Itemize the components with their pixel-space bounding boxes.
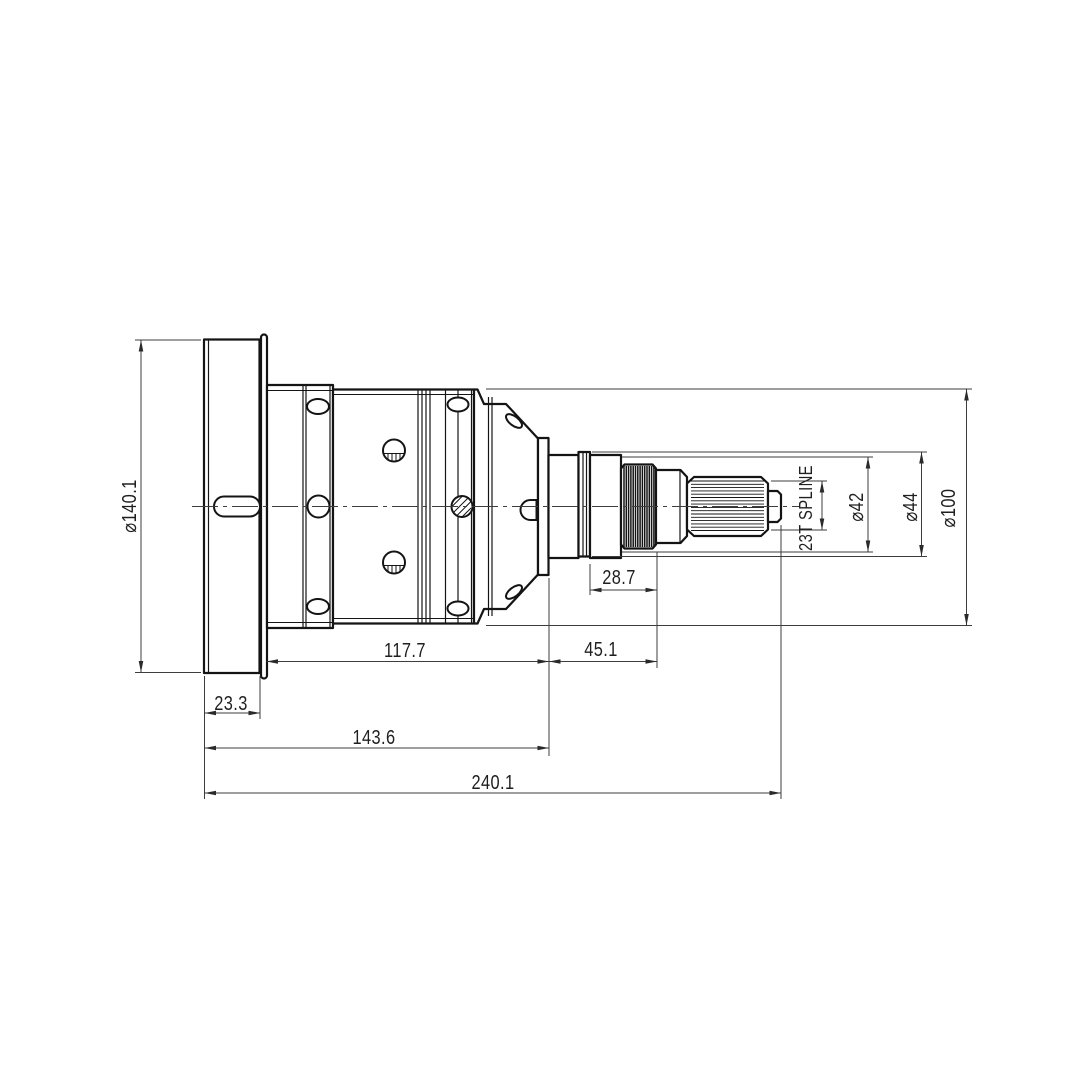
housing-slot [448, 602, 469, 616]
label-overall-length: 240.1 [471, 773, 514, 793]
label-thread-length: 28.7 [602, 568, 636, 588]
housing-slot [448, 398, 469, 412]
face-notch [521, 500, 537, 520]
label-shaft-length: 45.1 [584, 640, 618, 660]
housing-slot [307, 399, 329, 414]
label-spline-callout: 23T SPLINE [797, 465, 815, 551]
axle-shaft-drawing [0, 0, 1080, 1080]
technical-drawing-canvas: ⌀140.1 117.7 45.1 28.7 23.3 143.6 240.1 … [0, 0, 1080, 1080]
housing-slot [307, 599, 329, 614]
bolt-hole-top [383, 440, 405, 462]
label-flange-diameter: ⌀140.1 [120, 479, 140, 532]
dim-flange-diameter [135, 340, 201, 673]
label-housing-length: 117.7 [384, 641, 426, 661]
bolt-hole-bottom [383, 552, 405, 574]
label-spline-diameter: ⌀42 [847, 492, 867, 521]
label-flange-thickness: 23.3 [214, 694, 248, 714]
label-collar-diameter: ⌀44 [901, 492, 921, 521]
label-flange-to-housing-face: 143.6 [352, 728, 395, 748]
label-housing-diameter: ⌀100 [939, 489, 959, 528]
retainer-ring [579, 452, 591, 557]
